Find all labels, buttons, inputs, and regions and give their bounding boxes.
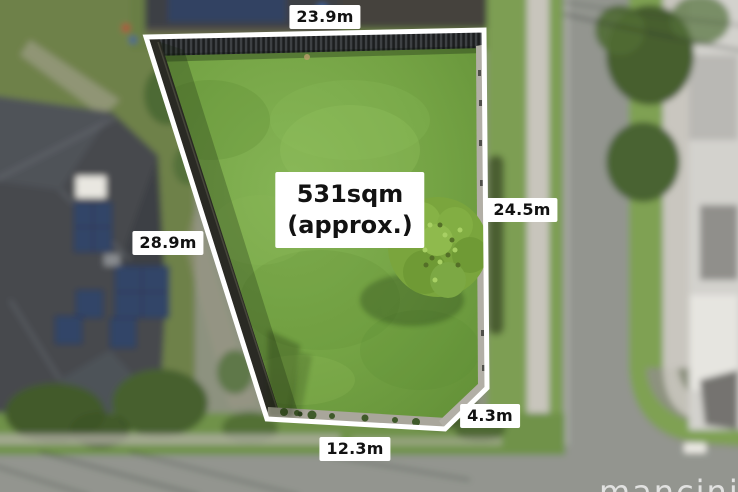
skylight: [76, 176, 106, 198]
dimension-label-top: 23.9m: [289, 5, 360, 29]
agency-watermark: mancini: [599, 473, 738, 492]
top-right-structure: [340, 0, 490, 28]
right-verge-grass-2: [549, 0, 565, 455]
lot-area-value: 531sqm: [287, 179, 412, 210]
dimension-label-left: 28.9m: [132, 231, 203, 255]
lawn-spot: [304, 54, 310, 60]
dimension-label-bottom: 12.3m: [319, 437, 390, 461]
roof-vent: [104, 254, 120, 266]
dimension-label-right: 24.5m: [486, 198, 557, 222]
dimension-label-bottom-right: 4.3m: [460, 404, 520, 428]
right-footpath: [527, 0, 551, 455]
road-edge-line: [566, 0, 568, 445]
top-house-solar: [168, 0, 286, 22]
bottom-footpath: [0, 434, 340, 445]
aerial-photo-frame: 23.9m 28.9m 24.5m 12.3m 4.3m 531sqm (app…: [0, 0, 738, 492]
hedge-outside-right: [488, 155, 504, 335]
lot-area-label: 531sqm (approx.): [275, 172, 424, 248]
lot-area-qualifier: (approx.): [287, 210, 412, 241]
